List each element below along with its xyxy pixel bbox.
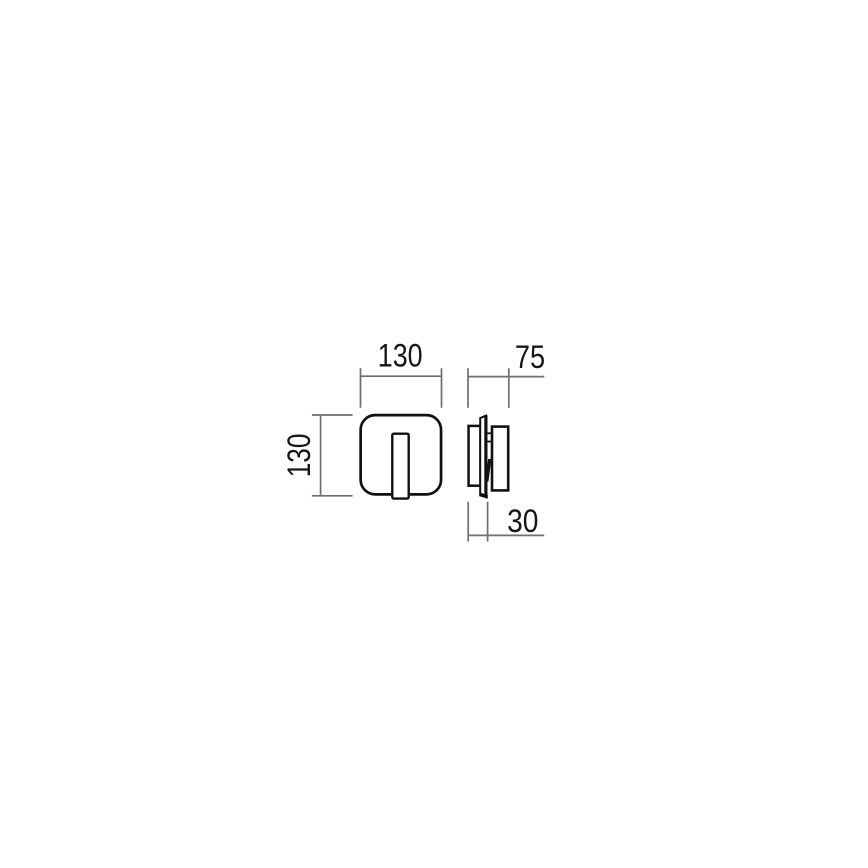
svg-text:30: 30 bbox=[507, 504, 538, 539]
svg-text:130: 130 bbox=[283, 434, 318, 478]
svg-text:130: 130 bbox=[378, 338, 423, 374]
svg-text:75: 75 bbox=[515, 340, 545, 376]
